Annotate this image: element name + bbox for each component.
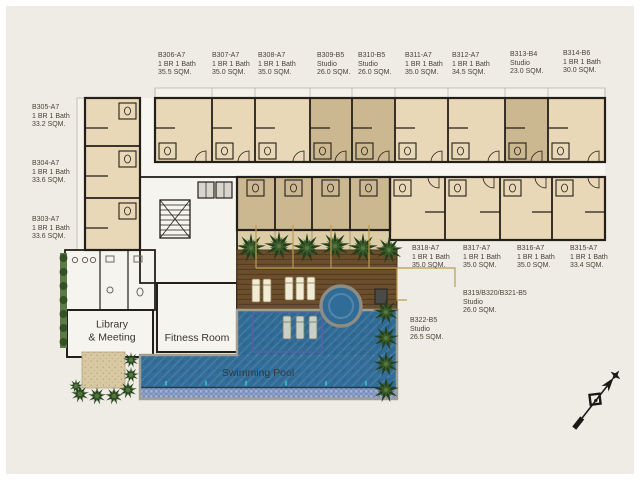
north-arrow-icon (568, 367, 623, 432)
pool-lounger (285, 277, 293, 300)
pool-deck (237, 250, 397, 312)
pool-lounger (296, 277, 304, 300)
tree-icon (105, 387, 123, 405)
floor-plan-image: Library & Meeting Fitness Room Swimming … (0, 0, 640, 480)
hedge (60, 253, 68, 348)
pool-lounger (283, 316, 291, 339)
deck-equipment-box (375, 289, 387, 304)
pool-lounger (252, 279, 260, 302)
spa-pool (321, 286, 361, 326)
pool-lounger (263, 279, 271, 302)
pool-lounger (296, 316, 304, 339)
pool-lounger (309, 316, 317, 339)
sand-patch (82, 352, 125, 388)
floor-plan-drawing (0, 0, 640, 480)
submerged-loungers (283, 316, 317, 339)
tree-icon (88, 387, 106, 405)
pool-lounger (307, 277, 315, 300)
tree-icon (123, 367, 139, 383)
